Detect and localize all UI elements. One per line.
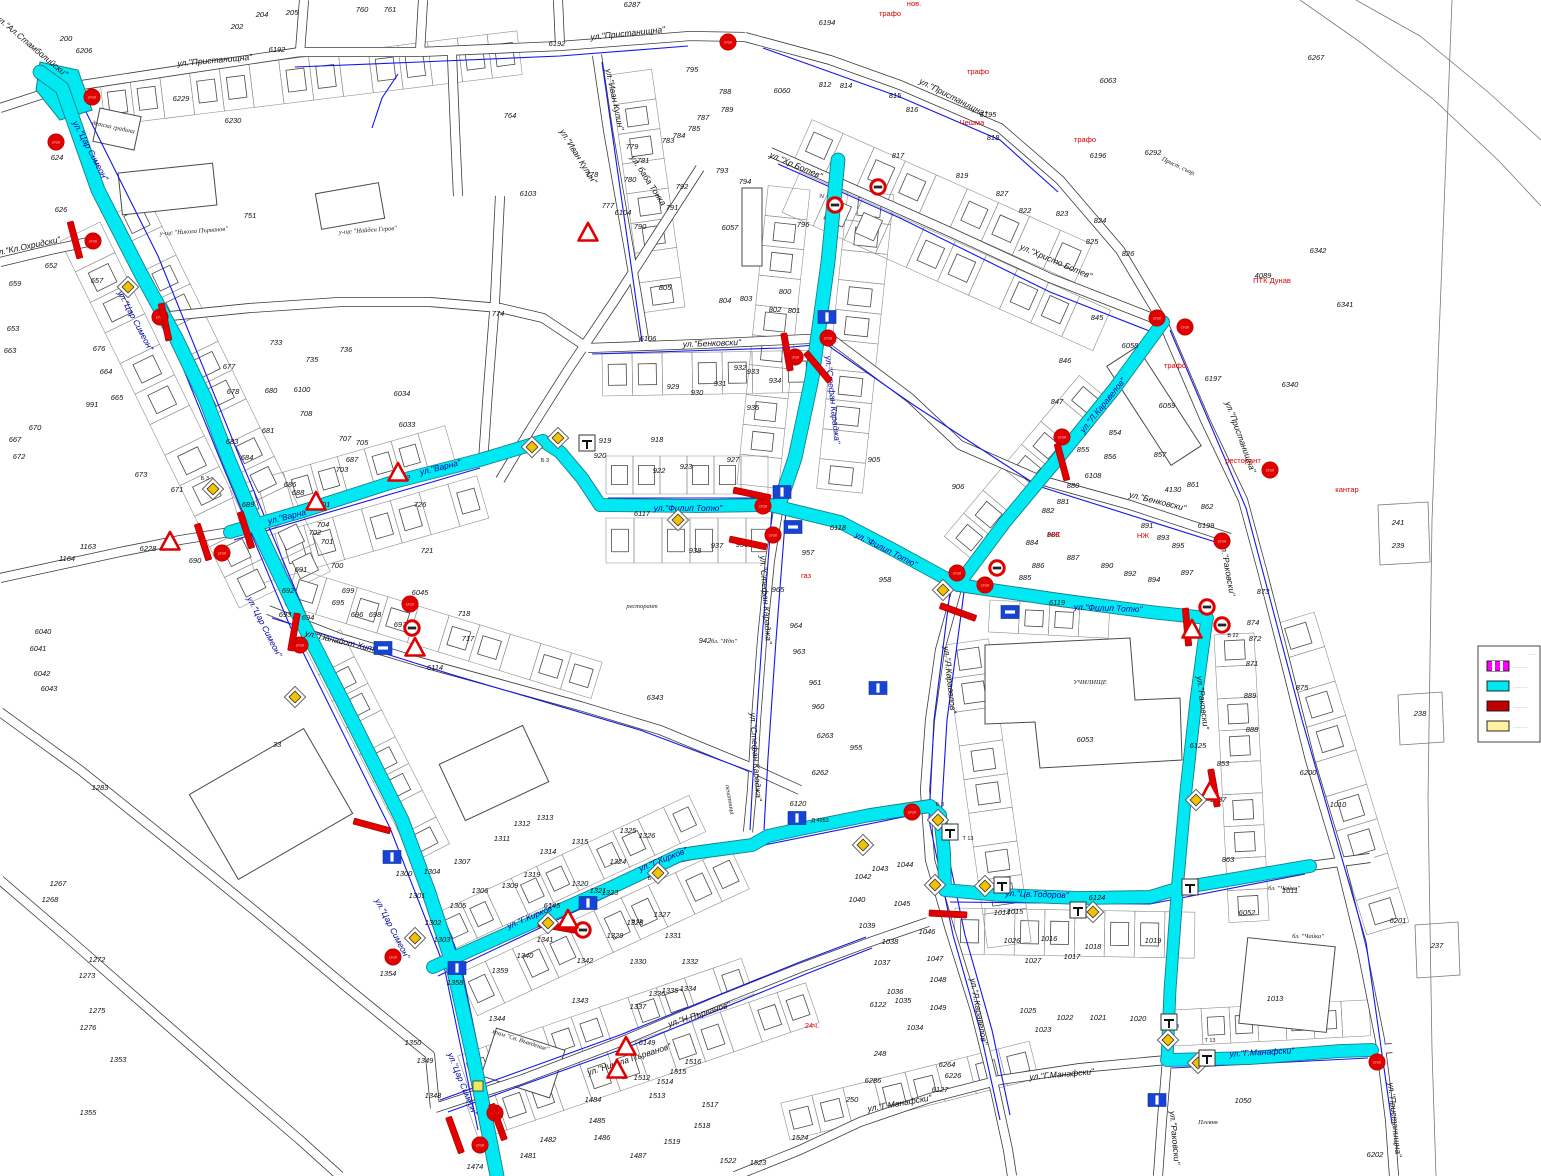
parcel-number: 688: [292, 488, 305, 497]
parcel-number: 1048: [930, 975, 948, 984]
priority-road-sign: [284, 686, 305, 707]
parcel-number: 6199: [1198, 521, 1216, 530]
parcel-number: 672: [13, 452, 26, 461]
stop-sign-text: СТОП: [389, 955, 398, 959]
parcel-number: 6034: [394, 389, 411, 398]
parcel-number: 6262: [812, 768, 830, 777]
parcel-number: 1018: [1085, 942, 1103, 951]
red-annotation: Чешма: [960, 118, 985, 127]
boundary-line: [1415, 922, 1460, 978]
parcel-number: 881: [1057, 497, 1070, 506]
parcel-number: 1353: [110, 1055, 128, 1064]
one-way-bar: [788, 525, 798, 528]
yellow-marker: [473, 1081, 483, 1091]
parcel-lot: [499, 634, 541, 680]
parcel-number: 1015: [1007, 907, 1025, 916]
parcel-number: 875: [1296, 683, 1309, 692]
parcel-number: 653: [7, 324, 20, 333]
building: [118, 163, 217, 215]
building: [1234, 832, 1255, 852]
building: [1239, 938, 1336, 1033]
street-label: ул."Бенковски": [682, 337, 743, 349]
one-way-bar: [455, 963, 458, 972]
parcel-number: 1329: [607, 931, 625, 940]
parcel-number: 690: [189, 556, 202, 565]
parcel-number: 1047: [927, 954, 945, 963]
building: [773, 223, 796, 243]
parcel-number: 861: [1187, 480, 1200, 489]
barrier-bar: [929, 910, 967, 918]
parcel-number: 1332: [682, 957, 700, 966]
parcel-number: 624: [51, 153, 64, 162]
parcel-number: 1324: [610, 857, 627, 866]
one-way-sign: [773, 486, 791, 499]
red-annotation: трафо: [879, 9, 901, 18]
parcel-number: 964: [790, 621, 803, 630]
legend: ········································…: [1478, 646, 1540, 742]
sign-code: Б 3: [201, 476, 209, 482]
parcel-lot: [820, 429, 869, 464]
parcel-number: 774: [492, 309, 505, 318]
one-way-bar: [780, 487, 783, 496]
parcel-number: 6042: [34, 669, 52, 678]
parcel-number: 1046: [919, 927, 937, 936]
parcel-number: 6226: [945, 1071, 963, 1080]
parcel-number: 6229: [173, 94, 191, 103]
parcel-number: 854: [1109, 428, 1122, 437]
building: [971, 748, 996, 771]
parcel-number: 1039: [859, 921, 877, 930]
parcel-number: 708: [300, 409, 313, 418]
priority-road-sign: [1157, 1029, 1178, 1050]
parcel-number: 934: [769, 376, 782, 385]
parcel-number: 1026: [1004, 936, 1022, 945]
parcel-number: 960: [812, 702, 825, 711]
parcel-number: 1016: [1041, 934, 1059, 943]
parcel-number: 918: [651, 435, 664, 444]
stop-sign: СТОП: [1214, 533, 1230, 549]
no-entry-sign: [828, 198, 842, 212]
parcel-number: 6100: [294, 385, 312, 394]
sign-code: Т 13: [1204, 1038, 1215, 1044]
legend-swatch: [1487, 661, 1509, 671]
building: [546, 866, 570, 891]
parcel-number: 6106: [640, 334, 658, 343]
parcel-number: 1050: [1235, 1096, 1253, 1105]
parcel-number: 853: [1217, 759, 1230, 768]
parcel-number: 694: [302, 613, 315, 622]
stop-sign-text: СТОП: [769, 533, 778, 537]
building: [550, 936, 576, 964]
building: [608, 364, 626, 385]
building: [786, 995, 810, 1021]
parcel-number: 6267: [1308, 53, 1326, 62]
building: [1025, 610, 1044, 627]
building: [961, 201, 988, 228]
parcel-number: 827: [996, 189, 1009, 198]
parcel-number: 702: [309, 528, 322, 537]
building: [668, 529, 685, 552]
parcel-number: 1164: [59, 554, 75, 563]
stop-sign: СТОП: [85, 233, 101, 249]
stop-sign-text: СТОП: [824, 336, 833, 340]
parcel-number: 6287: [624, 0, 642, 9]
parcel-number: 764: [504, 111, 517, 120]
stop-sign-text: СТОП: [476, 1143, 485, 1147]
parcel-number: 705: [356, 438, 369, 447]
parcel-number: 1025: [1020, 1006, 1038, 1015]
parcel-number: 238: [1413, 709, 1427, 718]
one-way-sign: [448, 962, 466, 975]
parcel-number: 1311: [494, 834, 510, 843]
parcel-number: 889: [1244, 691, 1257, 700]
parcel-number: 1027: [1025, 956, 1043, 965]
parcel-number: 6127: [932, 1085, 950, 1094]
building: [838, 376, 863, 396]
building: [539, 654, 563, 678]
parcel-number: 689: [242, 500, 255, 509]
building: [742, 188, 762, 266]
parcel-number: 1344: [489, 1014, 506, 1023]
parcel-number: 824: [1094, 216, 1107, 225]
parcel-number: 796: [797, 220, 810, 229]
parcel-number: 886: [1032, 561, 1045, 570]
building: [686, 873, 712, 901]
parcel-number: 626: [55, 205, 68, 214]
legend-note: ·····: [1529, 652, 1537, 657]
building: [226, 75, 247, 99]
parcel-number: 1517: [702, 1100, 720, 1109]
legend-swatch-stripe: [1500, 661, 1503, 671]
parcel-number: 1038: [882, 937, 900, 946]
parcel-number: 6228: [140, 544, 158, 553]
parcel-number: 1301: [409, 891, 426, 900]
legend-label: ··········: [1513, 705, 1528, 710]
building: [580, 1018, 603, 1042]
parcel-number: 818: [987, 133, 1000, 142]
junction-layout-sign: [994, 877, 1010, 893]
building: [1055, 611, 1074, 628]
building: [638, 364, 656, 385]
parcel-number: 1325: [620, 826, 638, 835]
place-label: бл. "Чайка": [1268, 885, 1300, 892]
parcel-number: 204: [255, 10, 269, 19]
one-way-sign: [869, 682, 887, 695]
parcel-number: 905: [868, 455, 881, 464]
parcel-lot: [737, 454, 782, 488]
sign-code: В 22: [631, 919, 642, 925]
parcel-number: 687: [346, 455, 359, 464]
place-label: ресторант: [625, 603, 658, 610]
parcel-number: 802: [769, 305, 782, 314]
stop-sign-text: СТОП: [908, 810, 917, 814]
building: [1233, 800, 1254, 820]
parcel-number: 1312: [514, 819, 532, 828]
building: [751, 431, 774, 451]
parcel-number: 761: [384, 5, 397, 14]
parcel-number: 6201: [1390, 916, 1407, 925]
stop-sign-text: СТОП: [406, 602, 415, 606]
parcel-number: 664: [100, 367, 113, 376]
landmark-buildings: [93, 108, 1335, 1098]
parcel-number: 6341: [1337, 300, 1354, 309]
building: [286, 68, 307, 92]
sign-code: В 22: [1227, 633, 1238, 639]
parcel-number: 785: [688, 124, 701, 133]
parcel-number: 695: [332, 598, 345, 607]
parcel-number: 805: [659, 283, 672, 292]
parcel-number: 6060: [774, 86, 792, 95]
building: [719, 466, 735, 485]
building: [521, 878, 545, 903]
road-surface: [1158, 1060, 1167, 1176]
parcel-number: 1320: [572, 879, 590, 888]
no-entry-sign: [405, 621, 419, 635]
one-way-sign: [818, 311, 836, 324]
legend-swatch: [1487, 701, 1509, 711]
parcel-number: 1021: [1090, 1013, 1107, 1022]
parcel-number: 659: [9, 279, 22, 288]
parcel-number: 699: [342, 586, 355, 595]
parcel-number: 935: [747, 403, 760, 412]
stop-sign-text: СТОП: [1266, 468, 1275, 472]
parcel-number: 6045: [412, 588, 430, 597]
one-way-sign: [1001, 606, 1019, 619]
parcel-number: 676: [93, 344, 106, 353]
parcel-number: 6041: [30, 644, 47, 653]
building: [133, 355, 162, 383]
building: [612, 529, 629, 552]
parcel-number: 1515: [670, 1067, 688, 1076]
parcel-number: 1524: [792, 1133, 809, 1142]
parcel-number: 1049: [930, 1003, 948, 1012]
parcel-number: 657: [91, 276, 104, 285]
parcel-lot: [419, 484, 460, 535]
building: [899, 173, 926, 200]
building: [1228, 704, 1249, 724]
building: [770, 252, 793, 272]
parcel-number: 1020: [1130, 1014, 1148, 1023]
street-label: ул."Раковски": [1218, 541, 1238, 598]
parcel-number: 1331: [665, 931, 682, 940]
legend-label: ··········: [1513, 665, 1528, 670]
red-annotation: ресторант: [1225, 456, 1261, 465]
parcel-number: 920: [594, 451, 607, 460]
parcel-number: 885: [1019, 573, 1032, 582]
parcel-number: 826: [1122, 249, 1135, 258]
street-label: ул."Раковски": [1168, 1110, 1183, 1166]
parcel-number: 6118: [830, 523, 847, 532]
building: [1010, 282, 1038, 310]
stop-sign-text: СТОП: [724, 40, 733, 44]
parcel-number: 721: [421, 546, 434, 555]
parcel-number: 895: [1172, 541, 1185, 550]
building: [848, 287, 873, 307]
parcel-number: 1337: [630, 1002, 648, 1011]
building: [439, 725, 549, 820]
building: [948, 254, 976, 282]
parcel-number: 6119: [1049, 598, 1066, 607]
parcel-number: 784: [673, 131, 686, 140]
stop-sign: СТОП: [1054, 429, 1070, 445]
stop-sign: СТОП: [720, 34, 736, 50]
parcel-number: 846: [1059, 356, 1072, 365]
no-entry-bar: [579, 929, 587, 932]
parcel-number: 6340: [1282, 380, 1300, 389]
legend-label: ··········: [1513, 685, 1528, 690]
parcel-number: 1275: [89, 1006, 107, 1015]
parcel-number: 1323: [602, 888, 620, 897]
parcel-number: 965: [772, 585, 785, 594]
sign-code: Б 3: [936, 802, 944, 808]
map-viewport[interactable]: 2006206202204205619261926229623062462675…: [0, 0, 1541, 1176]
parcel-lot: [634, 518, 662, 563]
parcel-number: 1513: [649, 1091, 667, 1100]
parcel-number: 1163: [80, 542, 97, 551]
building: [701, 1024, 725, 1050]
parcel-number: 698: [369, 610, 382, 619]
parcel-number: 205: [285, 8, 299, 17]
red-annotation: газ: [801, 571, 812, 580]
stop-sign: СТОП: [949, 565, 965, 581]
parcel-number: 862: [1201, 502, 1214, 511]
parcel-number: 707: [339, 434, 352, 443]
parcel-number: 933: [747, 367, 760, 376]
place-label: УЧИЛИЩЕ: [1073, 679, 1106, 686]
parcel-number: 652: [45, 261, 58, 270]
stop-sign: СТОП: [1369, 1054, 1385, 1070]
stop-sign-text: СТОП: [1218, 539, 1227, 543]
parcel-number: 733: [270, 338, 283, 347]
parcel-number: 1019: [1145, 936, 1163, 945]
building: [1110, 922, 1128, 945]
parcel-number: 847: [1051, 397, 1064, 406]
one-way-bar: [390, 852, 393, 861]
parcel-number: 6342: [1310, 246, 1328, 255]
building: [237, 569, 266, 597]
parcel-number: 6120: [790, 799, 808, 808]
yield-sign: [579, 223, 598, 241]
parcel-number: 237: [1430, 941, 1444, 950]
parcel-number: 927: [727, 455, 740, 464]
parcel-number: 6194: [819, 18, 836, 27]
parcel-lot: [741, 456, 768, 494]
building: [976, 782, 1001, 805]
parcel-number: 963: [793, 647, 806, 656]
red-annotation: НЖ: [1137, 531, 1149, 540]
one-way-bar: [795, 813, 798, 822]
legend-swatch-stripe: [1492, 661, 1495, 671]
boundary-line: [1398, 692, 1444, 745]
parcel-number: 1348: [425, 1091, 443, 1100]
parcel-number: 791: [666, 203, 679, 212]
red-annotation: 24ч.: [805, 1021, 819, 1030]
junction-layout-sign: [1070, 902, 1086, 918]
parcel-number: 6192: [269, 45, 287, 54]
barrier-bar-rect: [929, 910, 967, 918]
building: [1107, 347, 1201, 466]
parcel-number: 779: [626, 142, 639, 151]
parcel-number: 241: [1391, 518, 1405, 527]
school-building: [985, 638, 1182, 768]
parcel-lot: [333, 509, 374, 560]
sign-code: Т 13: [962, 836, 973, 842]
building: [372, 452, 393, 475]
parcel-number: 930: [691, 388, 704, 397]
parcel-number: 812: [819, 80, 832, 89]
barrier-bar-rect: [445, 1116, 464, 1154]
parcel-number: 1017: [1064, 952, 1082, 961]
parcel-number: 760: [356, 5, 369, 14]
parcel-number: 1272: [89, 955, 107, 964]
parcel-number: 239: [1391, 541, 1405, 550]
parcel-number: 6124: [1089, 893, 1106, 902]
parcel-number: 894: [1148, 575, 1161, 584]
stop-sign: СТОП: [820, 330, 836, 346]
parcel-number: 6053: [1077, 735, 1095, 744]
red-annotation: нов.: [907, 0, 921, 8]
road-surface: [500, 168, 700, 480]
one-way-sign: [374, 642, 392, 655]
parcel-number: 693: [279, 610, 292, 619]
building: [673, 1034, 697, 1060]
stop-sign: СТОП: [214, 545, 230, 561]
building: [764, 312, 787, 332]
building: [316, 64, 337, 88]
parcel-lot: [969, 807, 1017, 847]
parcel-number: 692: [282, 586, 295, 595]
stop-sign: СТОП: [765, 527, 781, 543]
parcel-number: 1336: [649, 989, 667, 998]
parcel-number: 6122: [870, 1000, 888, 1009]
parcel-number: 792: [676, 182, 689, 191]
red-annotation: трафо: [1164, 361, 1186, 370]
stop-sign: СТОП: [1149, 310, 1165, 326]
place-label: Прист. съор.: [1160, 155, 1197, 177]
parcel-number: 991: [86, 400, 99, 409]
parcel-number: 6125: [1190, 741, 1208, 750]
parcel-number: 1485: [589, 1116, 607, 1125]
parcel-number: 6117: [634, 509, 651, 518]
no-entry-sign: [1200, 600, 1214, 614]
boundary-line: [1356, 0, 1541, 140]
parcel-number: 684: [241, 453, 254, 462]
parcel-number: 961: [809, 678, 822, 687]
parcel-number: 691: [295, 565, 308, 574]
parcel-number: 822: [1019, 206, 1032, 215]
parcel-number: 816: [906, 105, 919, 114]
red-annotation: трафо: [967, 67, 989, 76]
parcel-number: 1519: [664, 1137, 682, 1146]
red-annotation: кантар: [1335, 485, 1358, 494]
parcel-number: 6196: [1090, 151, 1108, 160]
parcel-number: 892: [1124, 569, 1137, 578]
parcel-number: 6343: [647, 693, 665, 702]
parcel-number: 6103: [520, 189, 538, 198]
place-label: у-ще "Никола Първанов": [159, 226, 229, 238]
parcel-number: 863: [1222, 855, 1235, 864]
parcel-lot: [249, 60, 284, 107]
parcel-number: 817: [892, 151, 905, 160]
parcel-number: 683: [226, 437, 239, 446]
parcel-number: 790: [634, 222, 647, 231]
parcel-number: 1035: [895, 996, 913, 1005]
parcel-number: 33: [273, 740, 282, 749]
parcel-number: 6286: [865, 1076, 883, 1085]
parcel-number: 718: [458, 609, 471, 618]
parcel-number: 1036: [887, 987, 905, 996]
stop-sign-text: СТОП: [1058, 435, 1067, 439]
